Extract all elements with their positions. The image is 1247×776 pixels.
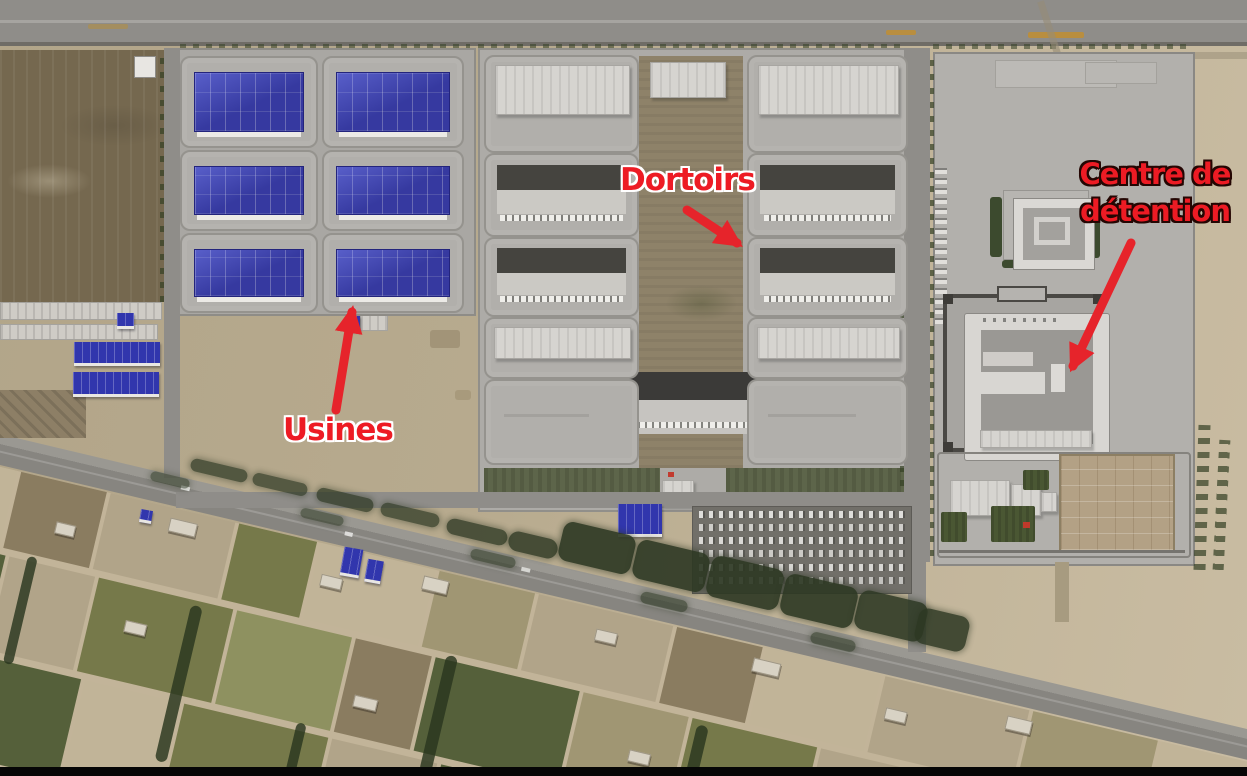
- label-usines: Usines: [283, 412, 393, 449]
- tree-cluster: [778, 572, 860, 630]
- tree-cluster: [299, 507, 344, 527]
- tree-cluster: [379, 501, 441, 528]
- label-detention: Centre de détention: [1064, 156, 1246, 230]
- tree-cluster: [149, 471, 190, 490]
- tree-cluster: [639, 591, 688, 614]
- tree-cluster: [556, 520, 637, 576]
- vegetation: [0, 0, 1247, 776]
- tree-cluster: [251, 472, 308, 498]
- label-detention-line2: détention: [1064, 193, 1246, 230]
- tree-cluster: [704, 554, 786, 612]
- satellite-map: Dortoirs Usines Centre de détention: [0, 0, 1247, 776]
- tree-cluster: [445, 517, 509, 547]
- tree-cluster: [315, 487, 375, 514]
- tree-cluster: [469, 548, 516, 569]
- label-dortoirs: Dortoirs: [620, 162, 755, 199]
- tree-cluster: [913, 607, 972, 654]
- tree-cluster: [189, 458, 248, 484]
- label-detention-line1: Centre de: [1064, 156, 1246, 193]
- tree-cluster: [630, 538, 711, 594]
- tree-cluster: [809, 631, 857, 653]
- bottom-black-bar: [0, 767, 1247, 776]
- tree-cluster: [506, 530, 559, 561]
